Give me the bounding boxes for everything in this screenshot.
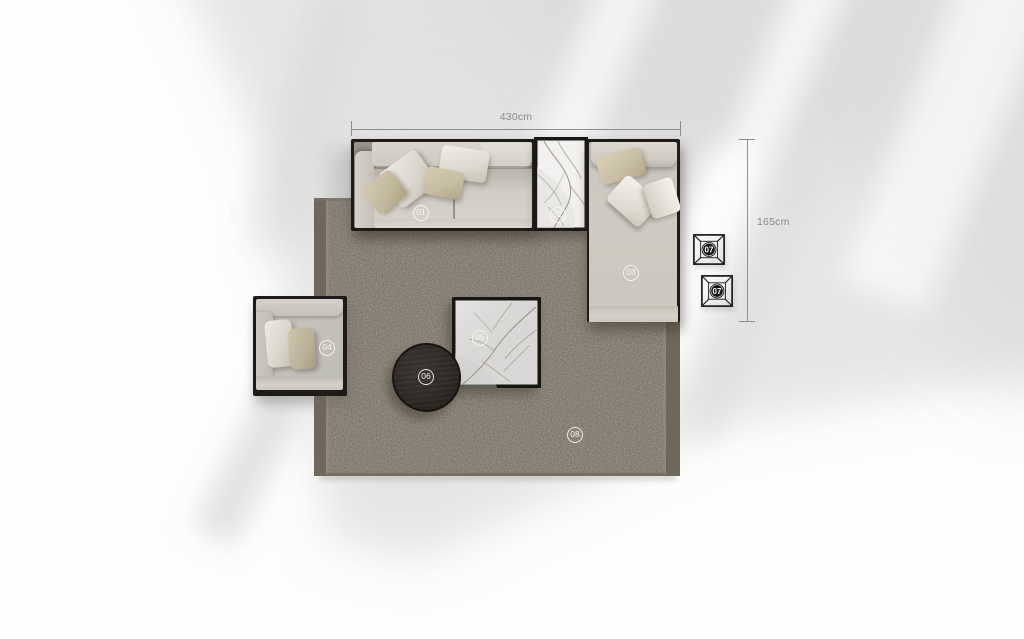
svg-text:07: 07 (705, 245, 714, 254)
svg-text:07: 07 (713, 287, 722, 296)
